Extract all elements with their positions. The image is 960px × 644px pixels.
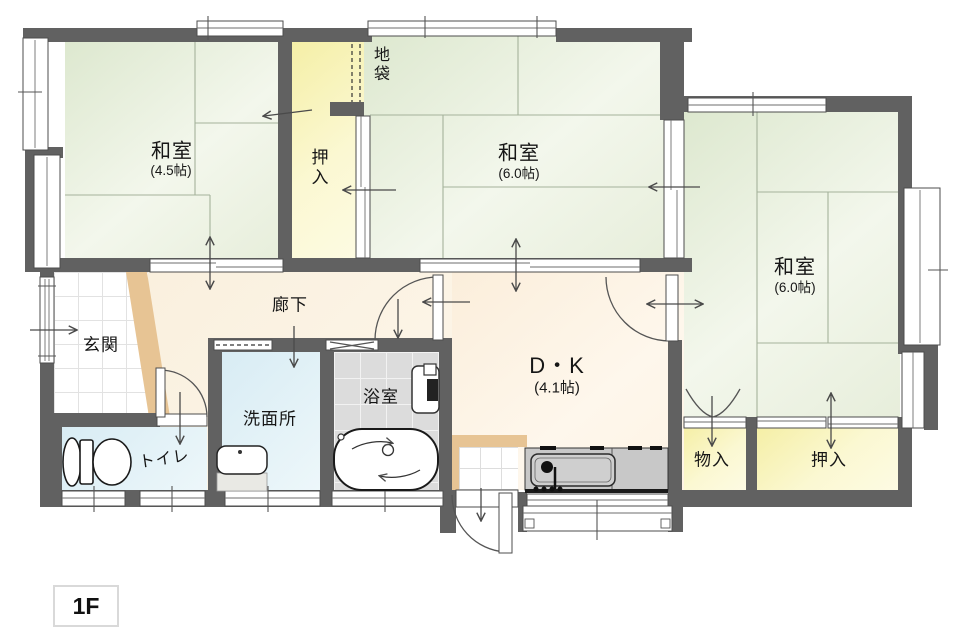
label-rouka: 廊下: [272, 291, 308, 316]
label-oshiire-southeast: 押入: [811, 446, 847, 471]
label-oshiire-north: 押入: [306, 148, 331, 188]
label-washitsu-nw-size: (4.5帖): [150, 159, 191, 179]
label-dk-size: (4.1帖): [534, 377, 580, 398]
label-dk: D・K: [529, 348, 585, 380]
label-washitsu-n-size: (6.0帖): [498, 162, 539, 182]
floor-tag-label: 1F: [73, 593, 100, 620]
label-washitsu-e-size: (6.0帖): [774, 276, 815, 296]
floorplan: 和室 (4.5帖) 和室 (6.0帖) 和室 (6.0帖) D・K (4.1帖)…: [0, 0, 960, 644]
floor-tag: 1F: [53, 585, 119, 627]
label-senmenjo: 洗面所: [243, 405, 297, 430]
label-jibukuro: 地袋: [367, 46, 391, 84]
room-bath-floor: [334, 352, 439, 490]
label-monoire: 物入: [694, 446, 730, 471]
kitchen-doma-tile: [459, 447, 518, 490]
label-genkan: 玄関: [83, 331, 119, 356]
label-yokushitsu: 浴室: [363, 383, 399, 408]
